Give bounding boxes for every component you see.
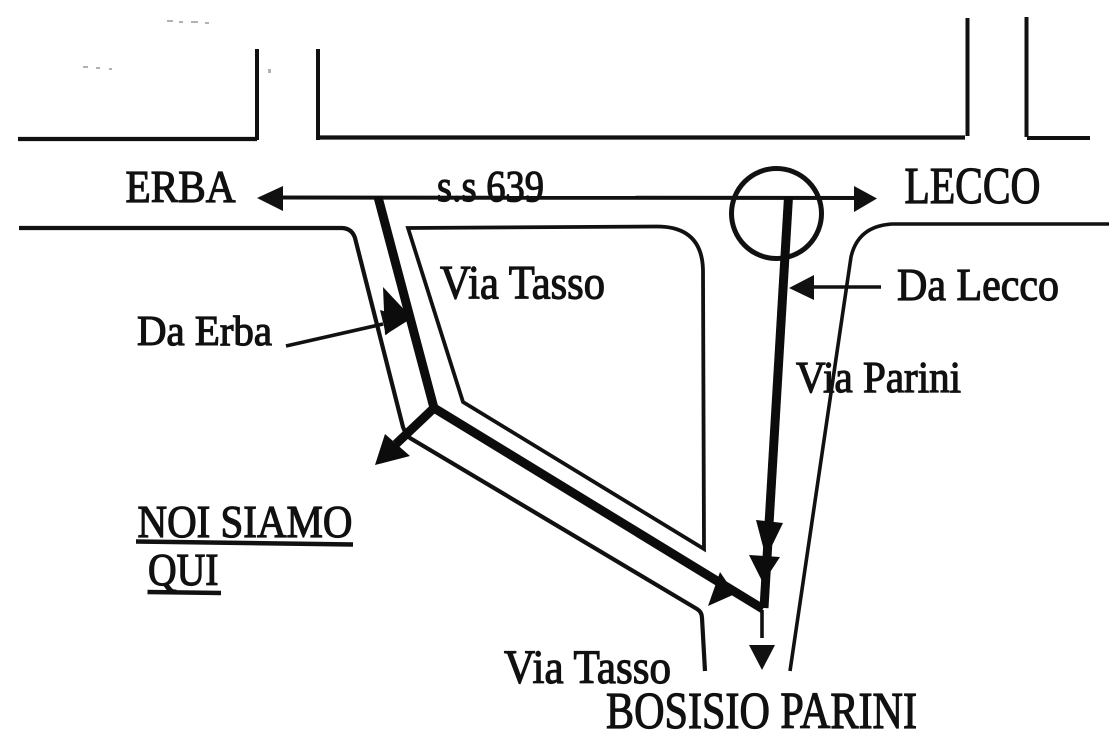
- svg-text:Via Tasso: Via Tasso: [440, 258, 605, 310]
- svg-text:BOSISIO PARINI: BOSISIO PARINI: [606, 683, 917, 740]
- svg-text:Da Erba: Da Erba: [137, 309, 272, 355]
- svg-text:NOI SIAMO: NOI SIAMO: [138, 496, 353, 547]
- svg-text:Da Lecco: Da Lecco: [897, 259, 1059, 310]
- svg-text:Via Parini: Via Parini: [796, 353, 961, 402]
- svg-text:LECCO: LECCO: [905, 158, 1041, 215]
- svg-text:QUI: QUI: [148, 545, 219, 595]
- svg-text:s.s 639: s.s 639: [437, 162, 544, 211]
- svg-text:ERBA: ERBA: [126, 162, 236, 212]
